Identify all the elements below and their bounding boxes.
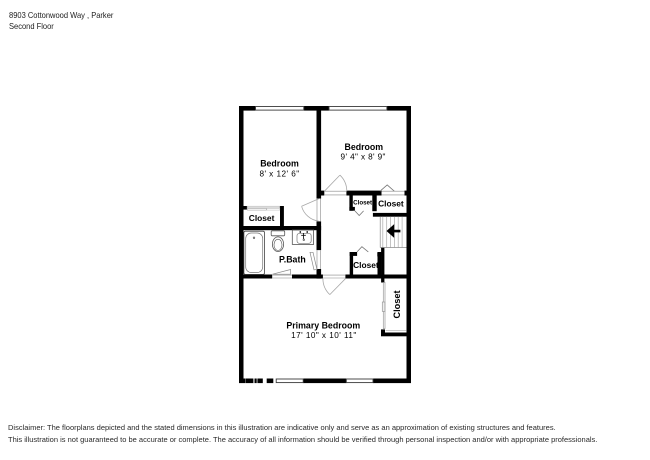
- svg-text:Primary Bedroom: Primary Bedroom: [286, 321, 360, 331]
- svg-text:Bedroom: Bedroom: [260, 159, 299, 169]
- svg-text:Closet: Closet: [353, 200, 372, 207]
- svg-text:Bedroom: Bedroom: [344, 142, 383, 152]
- svg-text:Closet: Closet: [392, 290, 402, 318]
- svg-text:17' 10" x 10' 11": 17' 10" x 10' 11": [291, 331, 357, 340]
- svg-text:8' x 12' 6": 8' x 12' 6": [259, 169, 299, 178]
- svg-text:Closet: Closet: [353, 260, 379, 270]
- svg-text:P.Bath: P.Bath: [279, 254, 306, 264]
- svg-text:Closet: Closet: [378, 199, 404, 209]
- svg-text:9' 4" x 8' 9": 9' 4" x 8' 9": [341, 152, 386, 161]
- svg-text:Closet: Closet: [249, 213, 275, 223]
